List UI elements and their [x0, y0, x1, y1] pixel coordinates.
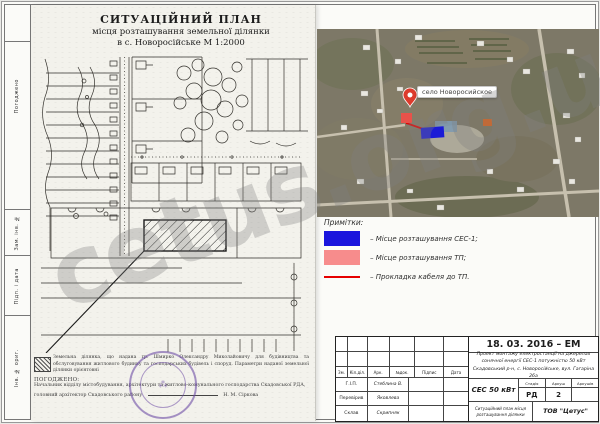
satellite-image — [317, 29, 599, 217]
agreed-name: Н. М. Сіркова — [223, 393, 258, 398]
frame-label: Зам. інв. № — [14, 215, 20, 251]
legend-item-cable: – Прокладка кабеля до ТП. — [324, 273, 534, 281]
frame-box-agreed: Погоджено — [4, 41, 30, 150]
signer-name: Яковлева — [368, 392, 410, 406]
tp-location-marker — [401, 113, 412, 123]
signer-name: Стеблина В. — [368, 378, 410, 392]
col-ark: Арк. — [368, 367, 390, 378]
sheet-label: Аркуш — [546, 379, 573, 387]
signer-role: Склав — [336, 406, 368, 421]
col-zm: Зм. — [336, 367, 348, 378]
round-stamp-emblem: ⁂ — [140, 362, 186, 408]
scanned-plan-document: СИТУАЦІЙНИЙ ПЛАН місця розташування земе… — [31, 5, 316, 421]
signer-name: Скрипняк — [368, 406, 410, 421]
object-name: СЕС 50 кВт — [469, 379, 519, 401]
sheet: Погоджено Зам. інв. № Підп. і дата Інв. … — [1, 1, 599, 423]
plot-leader-line — [46, 251, 144, 353]
left-frame-strip: Погоджено Зам. інв. № Підп. і дата Інв. … — [4, 4, 31, 420]
stage-label: Стадія — [519, 379, 546, 387]
company-name: ТОВ "Цетус" — [533, 402, 598, 421]
title-block-right: 18. 03. 2016 – ЕМ Проект монтажу електро… — [469, 337, 598, 421]
frame-label: Погоджено — [14, 79, 20, 113]
house-symbols-west — [110, 61, 117, 220]
frame-label: Підп. і дата — [14, 268, 20, 305]
frame-box-inv-orig: Інв. № ориг. — [4, 315, 30, 420]
plan-title: СИТУАЦІЙНИЙ ПЛАН місця розташування земе… — [71, 13, 291, 48]
ses-location-marker — [421, 126, 445, 139]
cadastral-map-drawing — [32, 51, 314, 353]
cable-line-swatch — [324, 276, 360, 278]
sheets-label: Аркушів — [572, 379, 598, 387]
title-block-left: Зм. Кіл.діл. Арк. №док. Підпис Дата Г.І.… — [336, 337, 469, 421]
plot-hatch-key — [34, 357, 51, 372]
col-data: Дата — [444, 367, 468, 378]
sheet-value: 2 — [546, 388, 573, 401]
legend-heading: Примітки: — [324, 218, 534, 227]
frame-label: Інв. № ориг. — [14, 349, 20, 387]
col-kil: Кіл.діл. — [348, 367, 368, 378]
legend-item-label: – Прокладка кабеля до ТП. — [370, 273, 469, 281]
tp-color-swatch — [324, 250, 360, 265]
legend-item-ses: – Місце розташування СЕС-1; — [324, 231, 534, 246]
frame-box-zam-inv: Зам. інв. № — [4, 209, 30, 256]
legend: Примітки: – Місце розташування СЕС-1; – … — [324, 218, 534, 285]
sheets-value — [572, 388, 598, 401]
project-description: Проект монтажу електростанції на джерела… — [469, 353, 598, 379]
plan-title-line2: місця розташування земельної ділянки — [71, 27, 291, 37]
frame-box-podp-data: Підп. і дата — [4, 255, 30, 316]
allocated-plot-hatched — [144, 220, 226, 251]
signer-role: Г.І.П. — [336, 378, 368, 392]
signer-role: Перевірив — [336, 392, 368, 406]
tree-symbols — [174, 59, 248, 143]
satellite-map: село Новоросийское — [317, 29, 599, 217]
legend-item-tp: – Місце розташування ТП; — [324, 250, 534, 265]
legend-item-label: – Місце розташування ТП; — [370, 254, 466, 262]
ses-color-swatch — [324, 231, 360, 246]
col-ndok: №док. — [390, 367, 416, 378]
legend-item-label: – Місце розташування СЕС-1; — [370, 235, 478, 243]
drawing-title: Ситуаційний план місця розташування діля… — [469, 402, 533, 421]
stage-value: РД — [519, 388, 546, 401]
place-label: село Новоросийское — [417, 86, 497, 98]
col-pidpys: Підпис — [415, 367, 444, 378]
drawing-sheet-page: Погоджено Зам. інв. № Підп. і дата Інв. … — [0, 0, 600, 424]
plan-title-line1: СИТУАЦІЙНИЙ ПЛАН — [71, 13, 291, 26]
round-stamp: ⁂ — [129, 351, 197, 419]
title-block: Зм. Кіл.діл. Арк. №док. Підпис Дата Г.І.… — [335, 336, 599, 422]
plan-title-line3: в с. Новоросійське М 1:2000 — [71, 38, 291, 48]
